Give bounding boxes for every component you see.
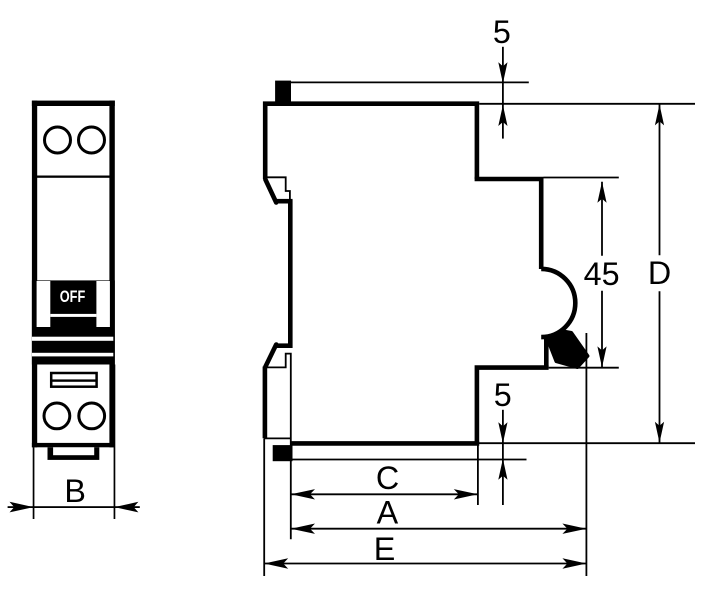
svg-text:A: A xyxy=(377,494,399,530)
svg-text:5: 5 xyxy=(494,377,512,413)
svg-text:45: 45 xyxy=(584,256,620,292)
svg-text:C: C xyxy=(376,460,399,496)
svg-text:5: 5 xyxy=(493,14,511,50)
svg-text:D: D xyxy=(648,255,671,291)
svg-text:E: E xyxy=(374,531,396,567)
svg-text:OFF: OFF xyxy=(60,288,86,306)
svg-text:B: B xyxy=(64,473,86,509)
